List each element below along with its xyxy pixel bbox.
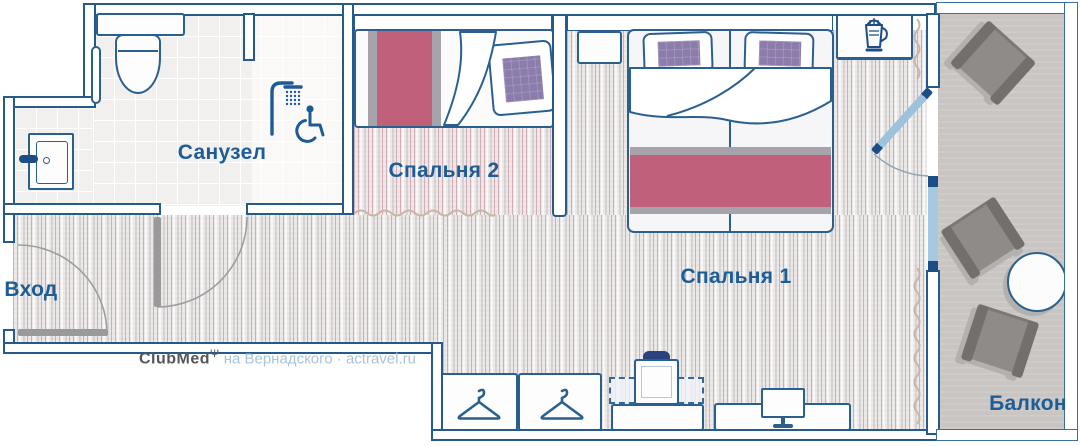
sink-faucet xyxy=(19,155,38,163)
bathroom-door xyxy=(154,217,161,307)
wall-bath-stub xyxy=(243,13,255,61)
bathroom-door-arc xyxy=(150,210,255,315)
balcony-railing-bottom xyxy=(936,429,1078,441)
wall-top xyxy=(83,3,936,16)
entrance-door xyxy=(18,329,108,336)
wall-step-vertical xyxy=(431,342,443,441)
balcony-railing-right xyxy=(1064,2,1078,441)
wardrobe-section-1 xyxy=(436,373,518,431)
watermark-brand: ClubMed xyxy=(139,350,210,367)
wall-bedroom-divider xyxy=(552,14,567,217)
suitcase-icon xyxy=(634,351,679,405)
double-bed-duvet xyxy=(627,56,834,132)
wardrobe-section-2 xyxy=(518,373,602,431)
balcony-railing-top xyxy=(936,2,1078,14)
window-frame-bottom xyxy=(928,261,938,272)
wall-left-mid xyxy=(3,213,15,243)
watermark-text: на Вернадского · actravel.ru xyxy=(224,350,416,367)
curtain-wave-lower xyxy=(911,265,923,427)
kettle-icon xyxy=(859,15,889,57)
curtain-wave-horizontal xyxy=(352,206,497,220)
wall-nook-top xyxy=(3,96,96,108)
bathroom-label: Санузел xyxy=(178,141,266,165)
single-bed-duvet-fold xyxy=(438,29,522,128)
floor-plan: Санузел Спальня 2 Спальня 1 Вход Балкон … xyxy=(0,0,1080,446)
entrance-label: Вход xyxy=(4,278,57,302)
wall-bath-bottom-right xyxy=(246,203,354,215)
monitor-icon xyxy=(761,388,805,430)
balcony-table xyxy=(1007,252,1067,312)
toilet-cistern xyxy=(96,13,185,36)
window-frame-top xyxy=(928,176,938,187)
nightstand-left xyxy=(577,31,622,64)
balcony-label: Балкон xyxy=(989,392,1067,416)
watermark: ClubMedΨ на Вернадского · actravel.ru xyxy=(139,348,416,368)
bedroom1-label: Спальня 1 xyxy=(681,265,792,289)
balcony-door-arc xyxy=(858,140,938,185)
towel-rail-icon xyxy=(91,46,101,104)
trident-icon: Ψ xyxy=(210,348,219,360)
wall-nook-left xyxy=(3,96,15,213)
wall-balcony-upper xyxy=(926,13,940,88)
window xyxy=(928,187,938,261)
wall-bath-right xyxy=(342,3,354,215)
bedroom2-label: Спальня 2 xyxy=(389,159,500,183)
wall-balcony-lower xyxy=(926,270,940,435)
wall-bottom xyxy=(431,429,938,441)
luggage-rack-base xyxy=(611,404,704,431)
wheelchair-icon xyxy=(292,104,326,144)
wall-bath-bottom-left xyxy=(3,203,161,215)
